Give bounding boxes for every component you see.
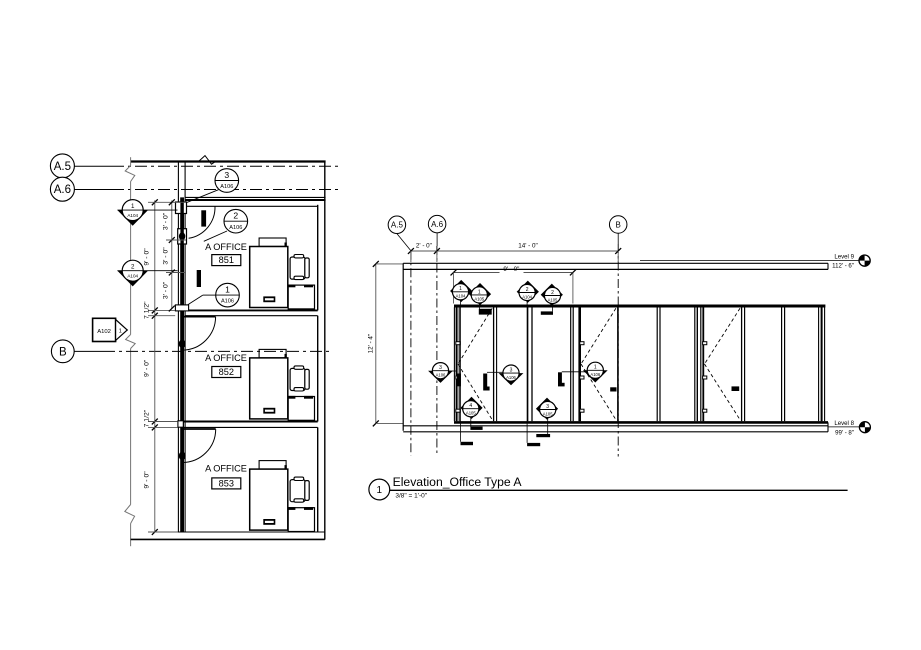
svg-text:A106: A106	[590, 372, 600, 377]
svg-text:A102: A102	[97, 329, 111, 335]
svg-text:14' - 0": 14' - 0"	[518, 242, 538, 249]
svg-text:A105: A105	[543, 411, 553, 416]
svg-text:A106: A106	[229, 225, 242, 231]
svg-text:2' - 0": 2' - 0"	[416, 242, 432, 249]
svg-text:1: 1	[594, 365, 597, 371]
svg-text:851: 851	[219, 255, 234, 265]
svg-text:3/8" = 1'-0": 3/8" = 1'-0"	[395, 493, 427, 500]
svg-text:2: 2	[131, 264, 135, 271]
svg-text:A106: A106	[436, 373, 446, 378]
svg-text:Level 9: Level 9	[834, 253, 854, 260]
svg-text:1: 1	[131, 203, 135, 210]
svg-text:A105: A105	[474, 297, 484, 302]
svg-text:3: 3	[224, 170, 229, 180]
svg-text:A.5: A.5	[391, 221, 404, 230]
svg-text:A.6: A.6	[431, 220, 444, 229]
svg-text:2: 2	[526, 287, 529, 293]
svg-text:112' - 6": 112' - 6"	[832, 263, 854, 270]
svg-text:1: 1	[459, 286, 462, 292]
svg-text:3: 3	[546, 404, 549, 410]
svg-text:A104: A104	[127, 274, 138, 279]
svg-text:1: 1	[119, 329, 122, 335]
svg-text:A104: A104	[456, 294, 466, 299]
svg-text:2: 2	[551, 290, 554, 296]
svg-text:A.5: A.5	[54, 161, 71, 173]
svg-text:A OFFICE: A OFFICE	[205, 353, 247, 363]
svg-text:2: 2	[233, 211, 238, 221]
svg-text:853: 853	[219, 479, 234, 489]
svg-text:99' - 8": 99' - 8"	[835, 430, 854, 437]
svg-text:A.6: A.6	[54, 184, 71, 196]
svg-text:9' - 0": 9' - 0"	[144, 359, 151, 377]
svg-text:A104: A104	[522, 294, 532, 299]
svg-text:A105: A105	[466, 411, 476, 416]
svg-text:9' - 0": 9' - 0"	[144, 471, 151, 489]
svg-text:7 1/2": 7 1/2"	[144, 301, 151, 319]
svg-text:A106: A106	[221, 299, 234, 305]
svg-text:7 1/2": 7 1/2"	[144, 409, 151, 427]
svg-text:3' - 0": 3' - 0"	[163, 212, 170, 230]
svg-text:3: 3	[439, 365, 442, 371]
svg-text:1: 1	[225, 285, 230, 295]
svg-text:B: B	[59, 347, 67, 359]
svg-text:12' - 4": 12' - 4"	[367, 334, 374, 354]
svg-text:852: 852	[219, 367, 234, 377]
svg-text:A OFFICE: A OFFICE	[205, 464, 247, 474]
svg-text:A105: A105	[548, 297, 558, 302]
svg-text:3' - 0": 3' - 0"	[163, 281, 170, 299]
svg-text:1: 1	[377, 485, 383, 496]
svg-text:3: 3	[510, 368, 513, 374]
svg-text:B: B	[616, 221, 621, 230]
svg-text:9' - 0": 9' - 0"	[144, 248, 151, 266]
svg-text:Elevation_Office Type A: Elevation_Office Type A	[393, 475, 523, 489]
svg-text:A OFFICE: A OFFICE	[205, 242, 247, 252]
svg-text:A106: A106	[220, 184, 233, 190]
svg-text:A104: A104	[127, 213, 138, 218]
svg-text:Level 8: Level 8	[834, 420, 854, 427]
svg-text:1: 1	[478, 289, 481, 295]
svg-text:4: 4	[469, 403, 472, 409]
svg-text:A106: A106	[506, 375, 516, 380]
svg-text:3' - 0": 3' - 0"	[163, 247, 170, 265]
